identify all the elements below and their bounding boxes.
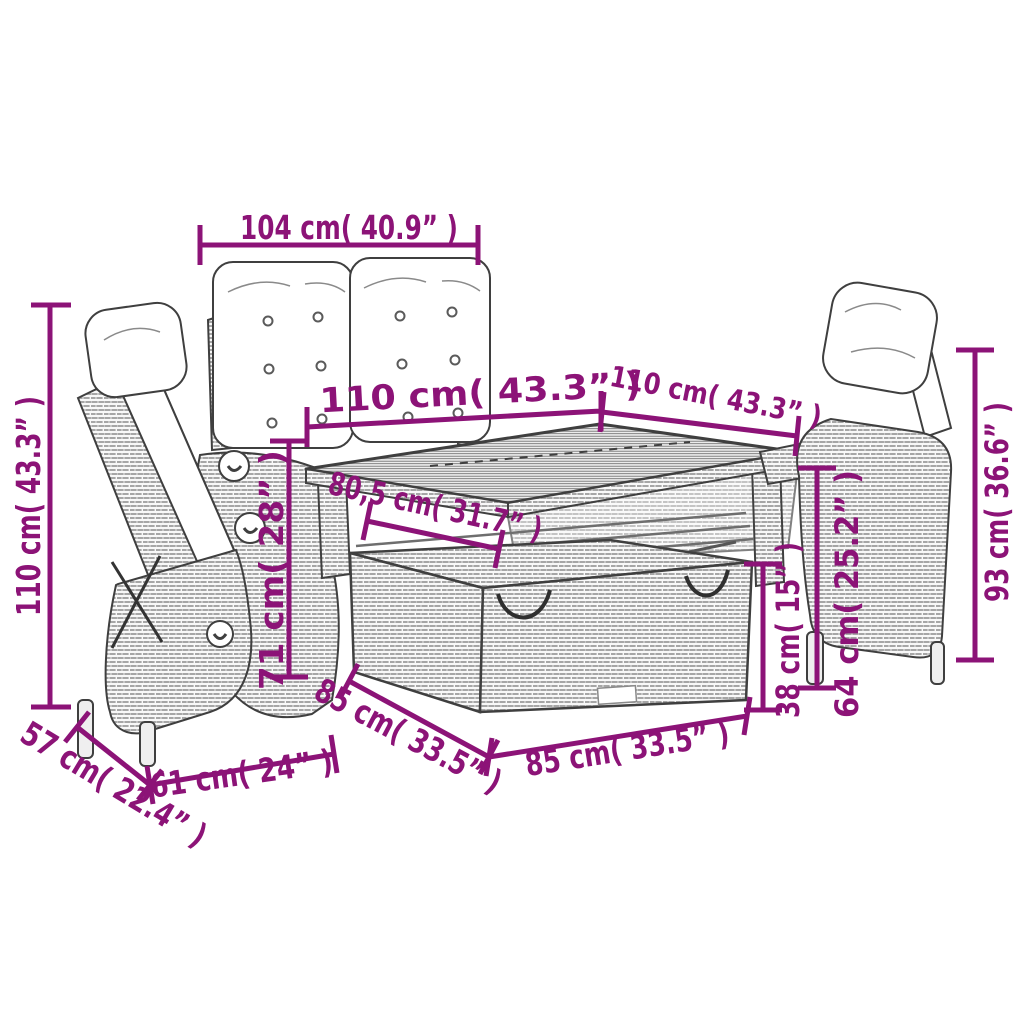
dim-label-bench-width: 85 cm( 33.5” ) — [522, 713, 732, 784]
dim-label-left-chair-height: 110 cm( 43.3” ) — [9, 396, 48, 616]
dim-label-right-chair-height: 93 cm( 36.6” ) — [978, 402, 1016, 602]
recline-knob — [219, 451, 249, 481]
right-chair-headrest — [819, 279, 941, 398]
right-chair-rear-leg — [931, 642, 944, 684]
left-chair-front-leg — [140, 722, 155, 766]
dim-label-right-chair-arm-height: 64 cm( 25.2” ) — [828, 470, 866, 718]
product-dimension-diagram: 104 cm( 40.9” ) 110 cm( 43.3” ) 110 cm( … — [0, 0, 1024, 1024]
dim-label-bench-height: 38 cm( 15” ) — [769, 542, 807, 718]
dim-label-table-length-right: 110 cm( 43.3” ) — [607, 359, 825, 433]
furniture-diagram-canvas: 104 cm( 40.9” ) 110 cm( 43.3” ) 110 cm( … — [0, 0, 1024, 1024]
dim-label-table-height: 71 cm( 28” ) — [252, 450, 291, 690]
dim-label-back-chairs-width: 104 cm( 40.9” ) — [240, 208, 458, 247]
left-chair-headrest — [82, 300, 189, 401]
dim-label-left-chair-width: 61 cm( 24” ) — [148, 741, 336, 805]
bench-label-patch — [597, 686, 636, 705]
storage-bench — [350, 540, 752, 712]
recline-knob — [207, 621, 233, 647]
right-chair-body — [797, 419, 951, 658]
